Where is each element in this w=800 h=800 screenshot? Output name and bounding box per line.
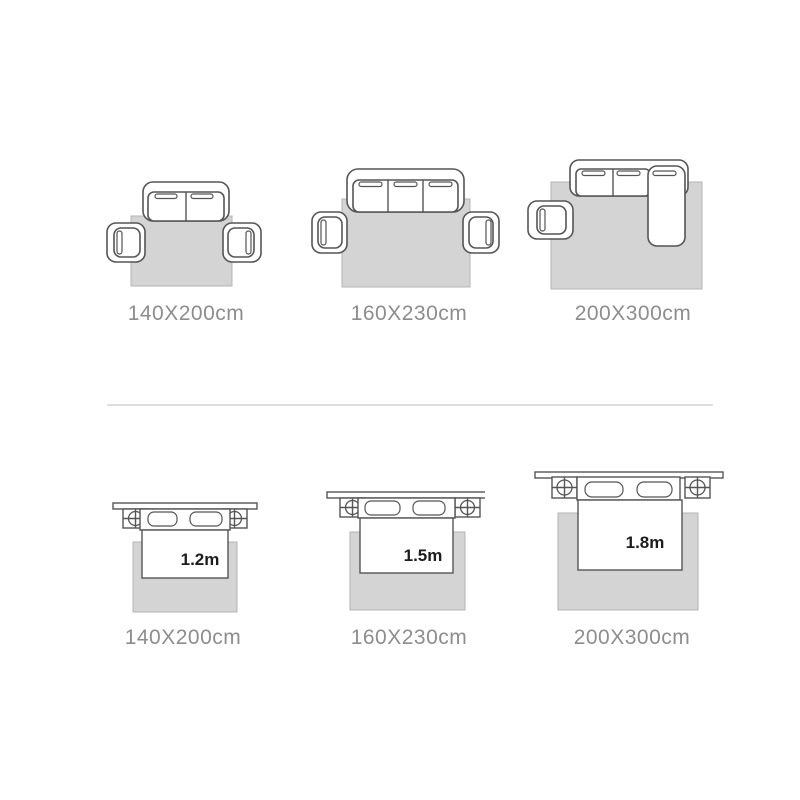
sofa-scene-medium bbox=[305, 150, 505, 300]
sofa-rug-size-label: 140X200cm bbox=[86, 302, 286, 326]
armchair-icon bbox=[528, 201, 573, 239]
nightstand-lamp-icon bbox=[552, 477, 577, 498]
bed-rug-size-label: 140X200cm bbox=[83, 626, 283, 650]
loveseat-sofa-icon bbox=[143, 182, 229, 221]
headboard-icon bbox=[113, 503, 257, 509]
pillow-icon bbox=[148, 512, 177, 526]
rug-size-guide: 140X200cm 160X230cm 200X300cm bbox=[0, 0, 800, 800]
section-divider bbox=[107, 404, 713, 406]
pillow-icon bbox=[637, 482, 672, 497]
pillow-icon bbox=[190, 512, 222, 526]
armchair-icon bbox=[223, 223, 261, 262]
armchair-icon bbox=[312, 212, 347, 253]
headboard-icon bbox=[327, 492, 485, 498]
nightstand-lamp-icon bbox=[685, 477, 710, 498]
sofa-scene-large bbox=[520, 140, 720, 305]
pillow-icon bbox=[365, 501, 400, 515]
bed-rug-size-label: 200X300cm bbox=[532, 626, 732, 650]
bed-width-label: 1.5m bbox=[373, 546, 473, 566]
nightstand-lamp-icon bbox=[455, 498, 480, 517]
pillow-icon bbox=[413, 501, 445, 515]
armchair-icon bbox=[107, 223, 145, 262]
sofa-rug-size-label: 160X230cm bbox=[309, 302, 509, 326]
three-seat-sofa-icon bbox=[347, 169, 464, 212]
pillow-icon bbox=[585, 482, 623, 497]
bed-width-label: 1.2m bbox=[150, 550, 250, 570]
sofa-rug-size-label: 200X300cm bbox=[533, 302, 733, 326]
bed-icon bbox=[577, 477, 682, 570]
bed-rug-size-label: 160X230cm bbox=[309, 626, 509, 650]
bed-width-label: 1.8m bbox=[595, 533, 695, 553]
sofa-scene-small bbox=[95, 150, 275, 300]
armchair-icon bbox=[463, 212, 499, 253]
rug-shape bbox=[131, 216, 232, 286]
